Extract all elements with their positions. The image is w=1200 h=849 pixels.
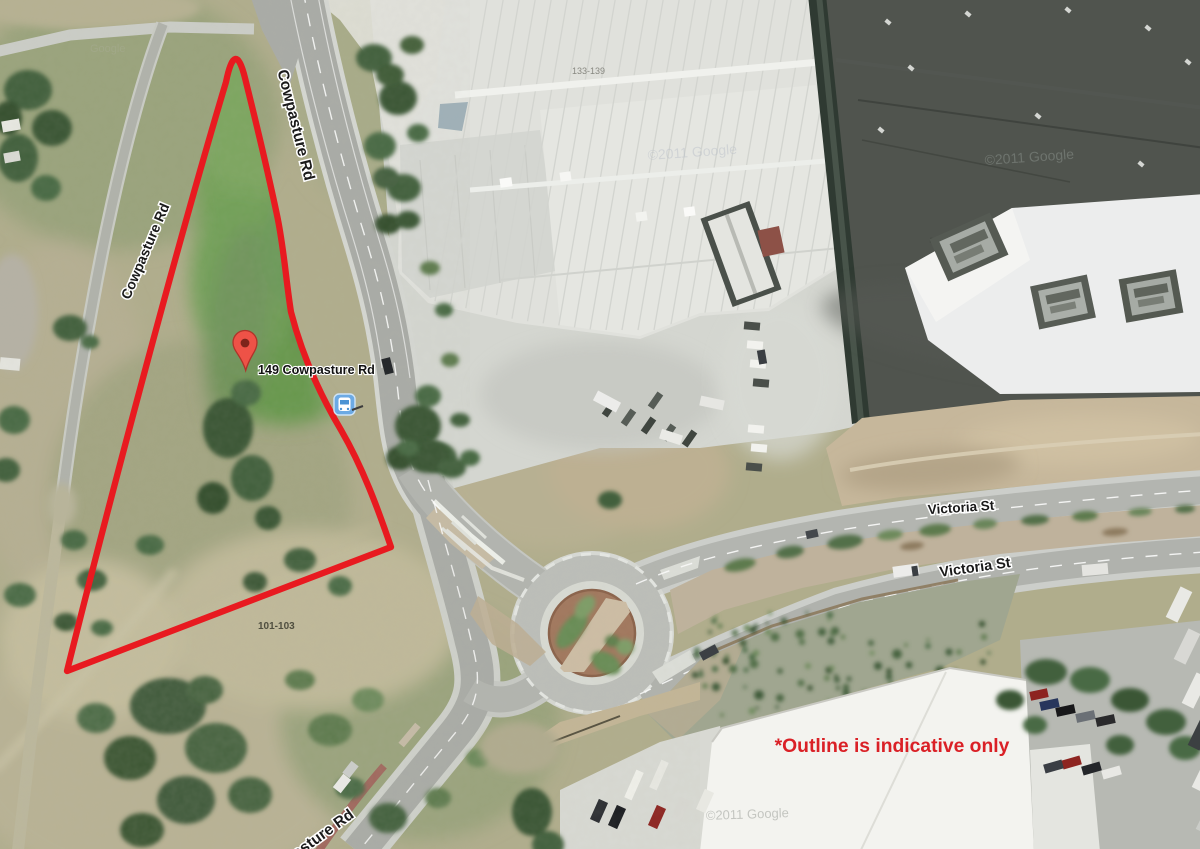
svg-text:101-103: 101-103 — [258, 621, 295, 632]
svg-text:Google: Google — [90, 43, 125, 55]
svg-text:149 Cowpasture Rd: 149 Cowpasture Rd — [258, 363, 375, 377]
svg-text:*Outline is indicative only: *Outline is indicative only — [775, 736, 1010, 757]
svg-text:133-139: 133-139 — [572, 66, 605, 76]
svg-text:©2011 Google: ©2011 Google — [706, 805, 790, 823]
